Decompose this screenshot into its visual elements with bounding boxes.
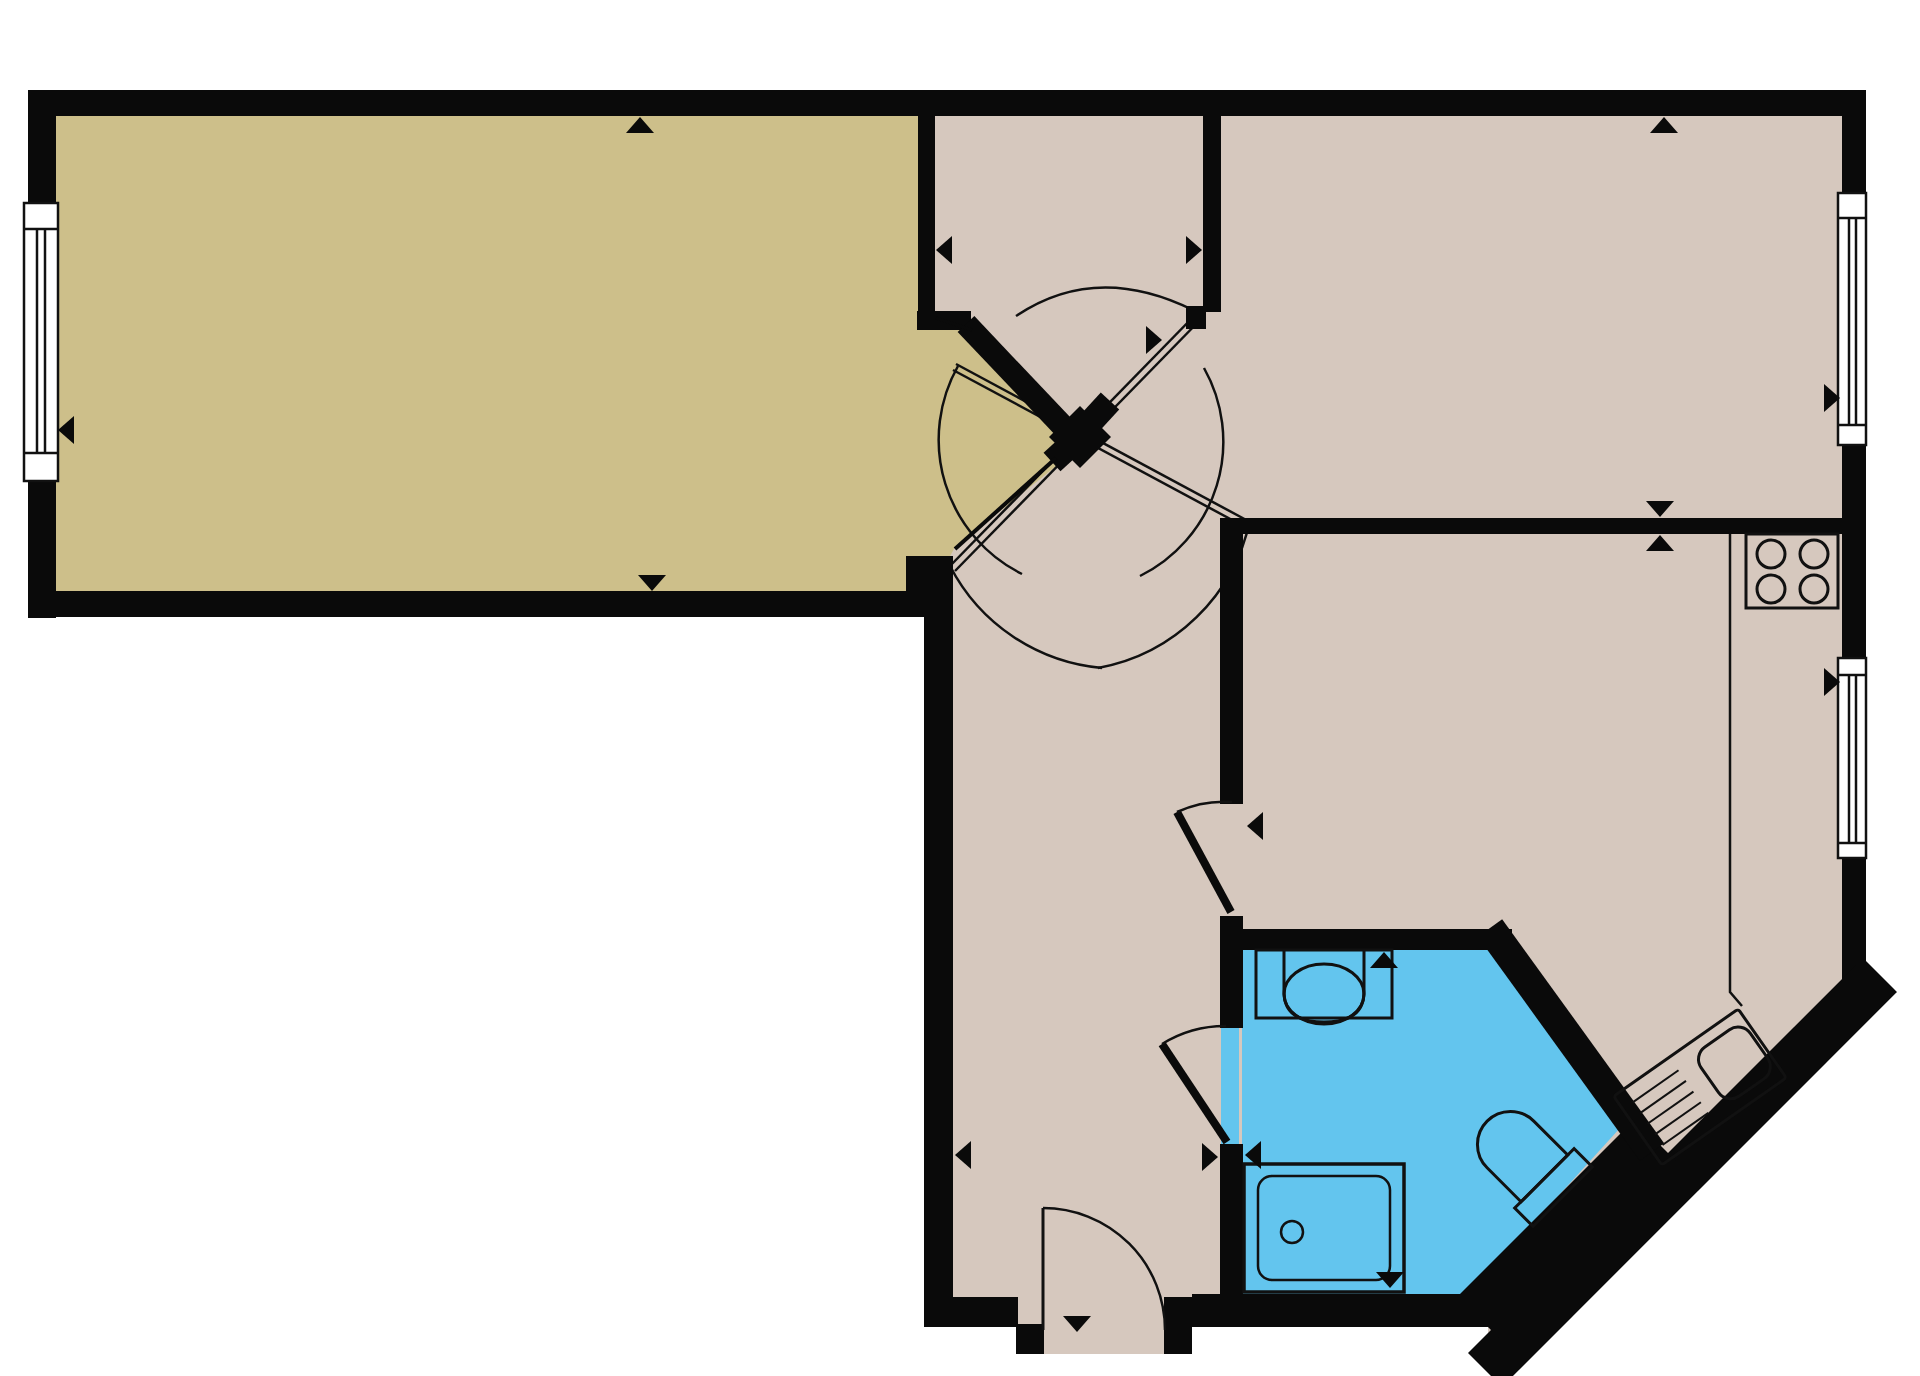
wall-entrance-jamb-left — [1016, 1324, 1044, 1354]
wall-corridor-kitchen-b — [1220, 916, 1243, 1028]
mask-below-threshold — [1018, 1354, 1192, 1376]
wall-kitchen-bedroom — [1220, 518, 1844, 534]
wall-corridor-left — [924, 591, 953, 1327]
floor-plan-svg — [0, 0, 1920, 1376]
wall-vestibule-left — [918, 112, 935, 316]
wall-right-mid — [1842, 445, 1866, 660]
wall-living-bottom — [28, 591, 952, 617]
living-room-window — [24, 203, 58, 481]
wall-top — [28, 90, 1866, 116]
mask-below-left — [700, 1327, 1018, 1376]
kitchen-window — [1838, 658, 1866, 858]
bathroom-doorway-floor — [1221, 1028, 1239, 1144]
wall-entrance-jamb-right — [1164, 1297, 1192, 1354]
wall-left-upper — [28, 90, 56, 205]
wall-corridor-kitchen-a — [1220, 518, 1243, 804]
wall-right-top — [1842, 112, 1866, 195]
wall-vestibule-right-cap — [1186, 306, 1206, 329]
wall-bottom-left-of-door — [924, 1297, 1018, 1327]
wall-corridor-step — [906, 556, 953, 596]
floor-plan-canvas — [0, 0, 1920, 1376]
mask-below-right — [1192, 1327, 1488, 1376]
wall-corridor-bath — [1220, 1144, 1243, 1302]
wall-vestibule-right — [1203, 112, 1221, 312]
wall-bathroom-top — [1220, 929, 1512, 950]
bedroom-window — [1838, 193, 1866, 445]
